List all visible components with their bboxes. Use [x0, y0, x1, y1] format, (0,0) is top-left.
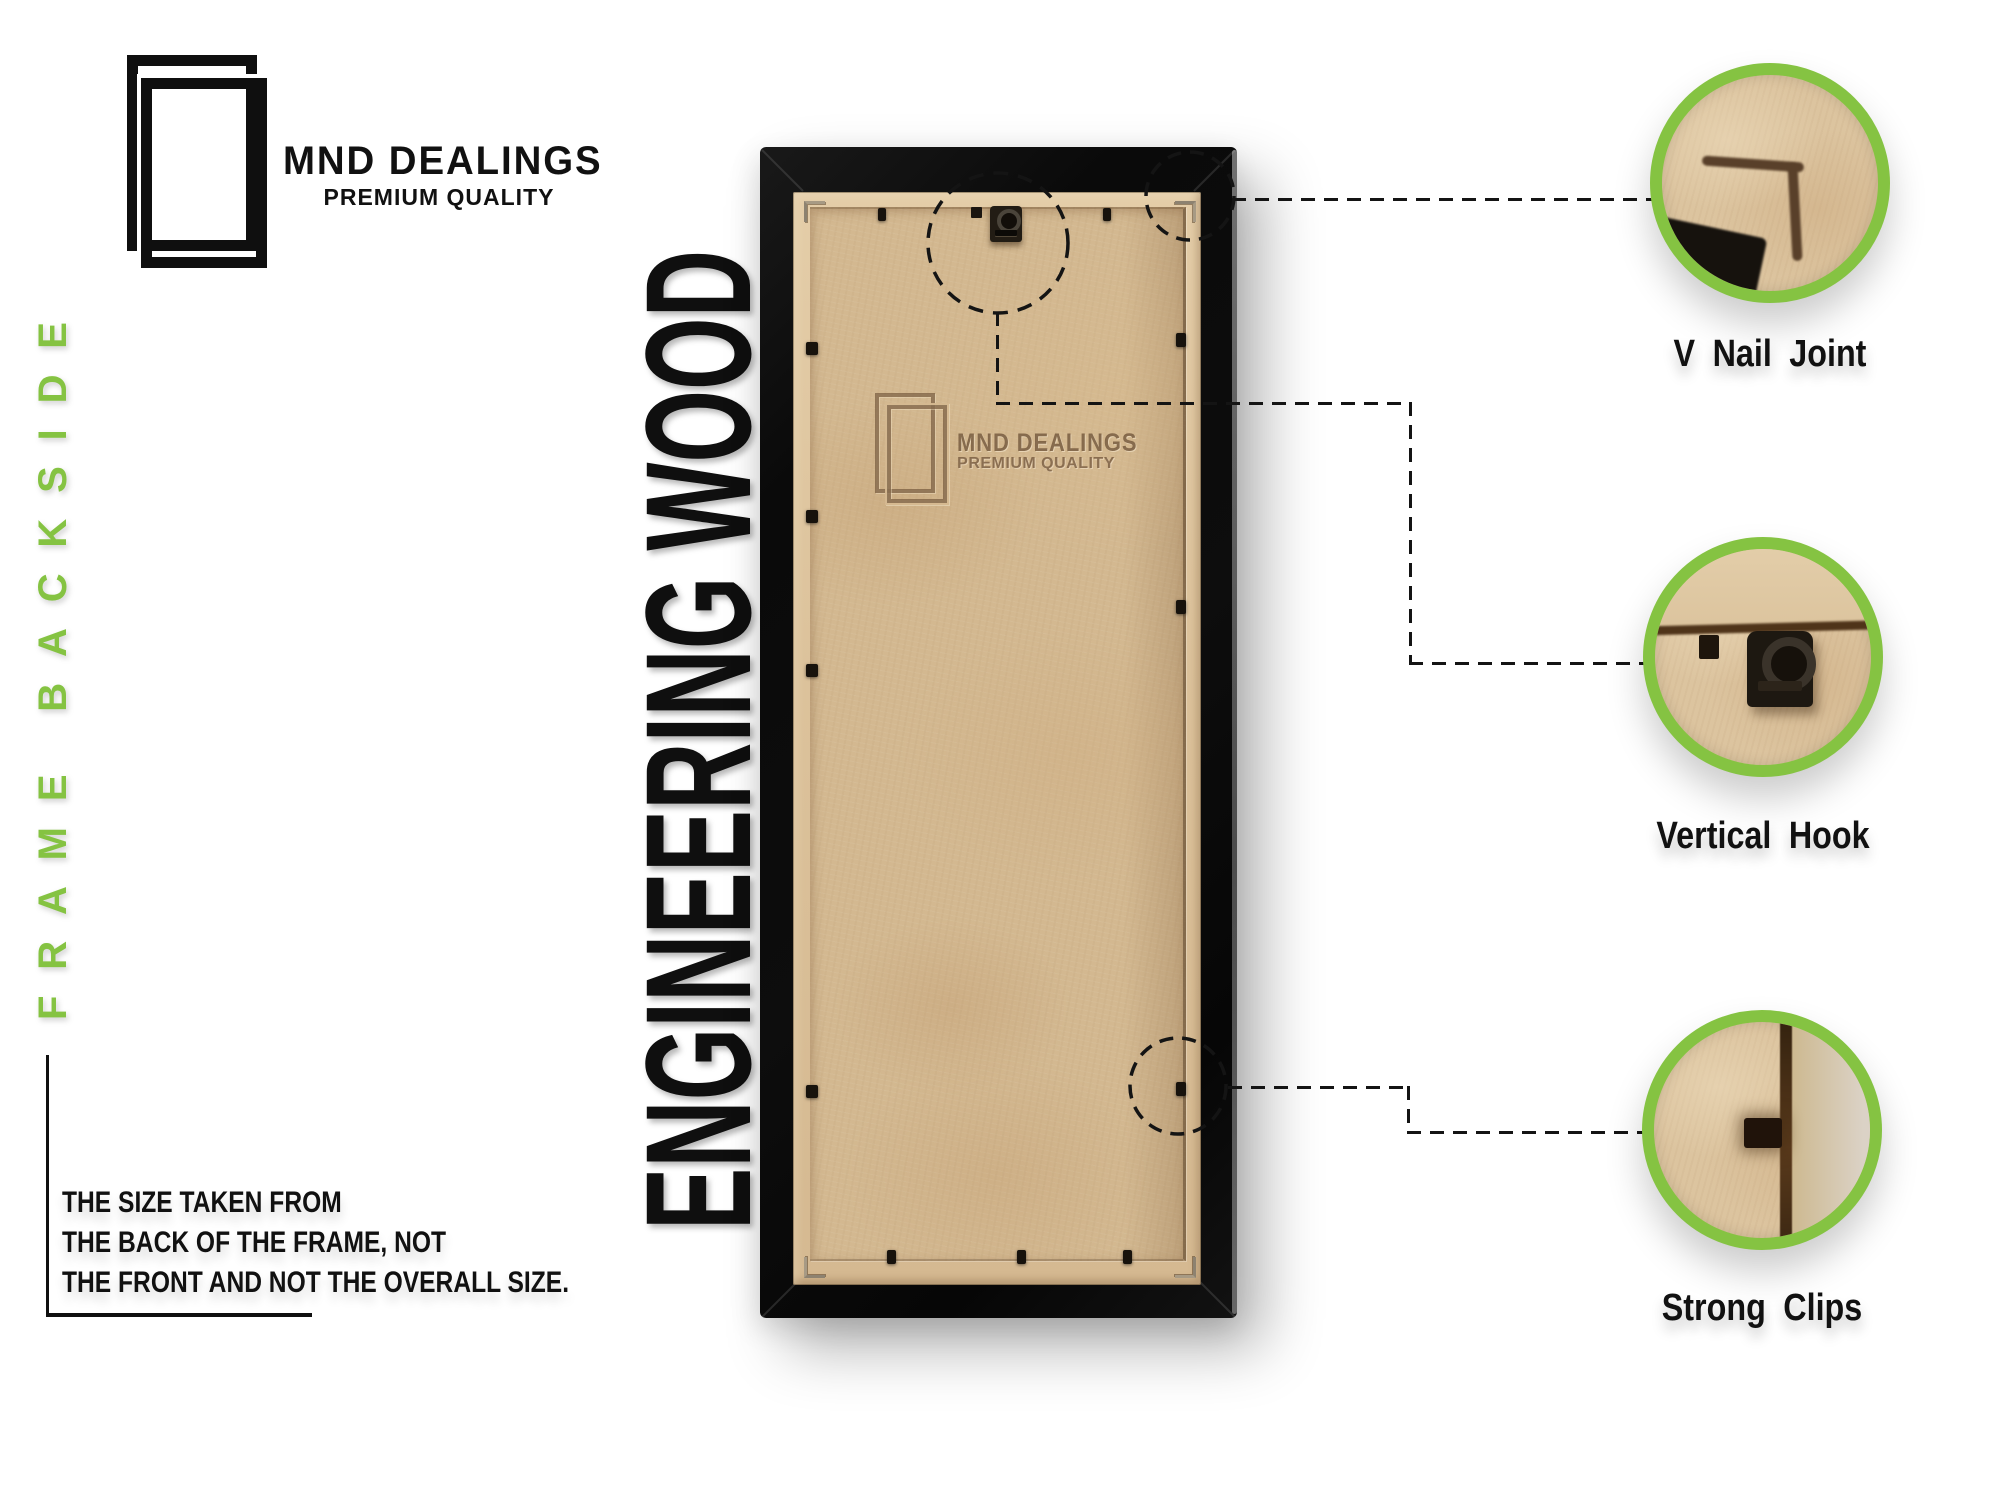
lip-lighter-zone	[1792, 1010, 1882, 1250]
connector-hook-seg3	[1409, 402, 1412, 664]
logo-front-rectangle	[141, 78, 267, 268]
note-vertical-rule	[46, 1055, 49, 1316]
side-label-text: FRAME BACKSIDE	[31, 308, 75, 1020]
callout-circle-vertical-hook	[1643, 537, 1883, 777]
callout-circle-strong-clips	[1642, 1010, 1882, 1250]
connector-clips-seg2	[1407, 1086, 1410, 1134]
callout-label-strong-clips: Strong Clips	[1652, 1287, 1873, 1330]
connector-hook-seg2	[996, 402, 1412, 405]
side-label-frame-backside: FRAME BACKSIDE	[6, 292, 98, 1032]
callout-label-vertical-hook: Vertical Hook	[1653, 815, 1874, 858]
connector-vnail	[1232, 198, 1652, 201]
connector-clips-seg1	[1228, 1086, 1410, 1089]
note-line-1: THE SIZE TAKEN FROM	[62, 1186, 342, 1220]
connector-hook-seg1	[996, 312, 999, 404]
brand-logo-mark	[0, 0, 300, 300]
note-line-3: THE FRONT AND NOT THE OVERALL SIZE.	[62, 1266, 569, 1300]
hook-slot	[1758, 681, 1802, 691]
small-clip-square	[1699, 635, 1719, 659]
dashed-circle-hook	[928, 173, 1068, 313]
product-infographic: MND DEALINGS PREMIUM QUALITY FRAME BACKS…	[0, 0, 2000, 1500]
frame-corner-shadow	[1650, 214, 1767, 303]
brand-tagline: PREMIUM QUALITY	[283, 184, 595, 211]
panel-edge-lighter-zone	[1643, 537, 1883, 626]
vertical-hook-icon	[1747, 631, 1813, 707]
callout-circle-v-nail-joint	[1650, 63, 1890, 303]
v-nail-mark-vertical	[1787, 163, 1802, 261]
dashed-circle-corner	[1146, 152, 1234, 240]
brand-name: MND DEALINGS	[283, 139, 603, 184]
note-line-2: THE BACK OF THE FRAME, NOT	[62, 1226, 446, 1260]
connector-hook-seg4	[1409, 662, 1649, 665]
material-label-text: ENGINEERING WOOD	[614, 250, 782, 1230]
strong-clip-icon	[1744, 1118, 1782, 1148]
callout-label-v-nail-joint: V Nail Joint	[1660, 333, 1881, 376]
dashed-circle-clip	[1130, 1038, 1226, 1134]
connector-clips-seg3	[1407, 1131, 1647, 1134]
note-horizontal-rule	[46, 1313, 312, 1317]
